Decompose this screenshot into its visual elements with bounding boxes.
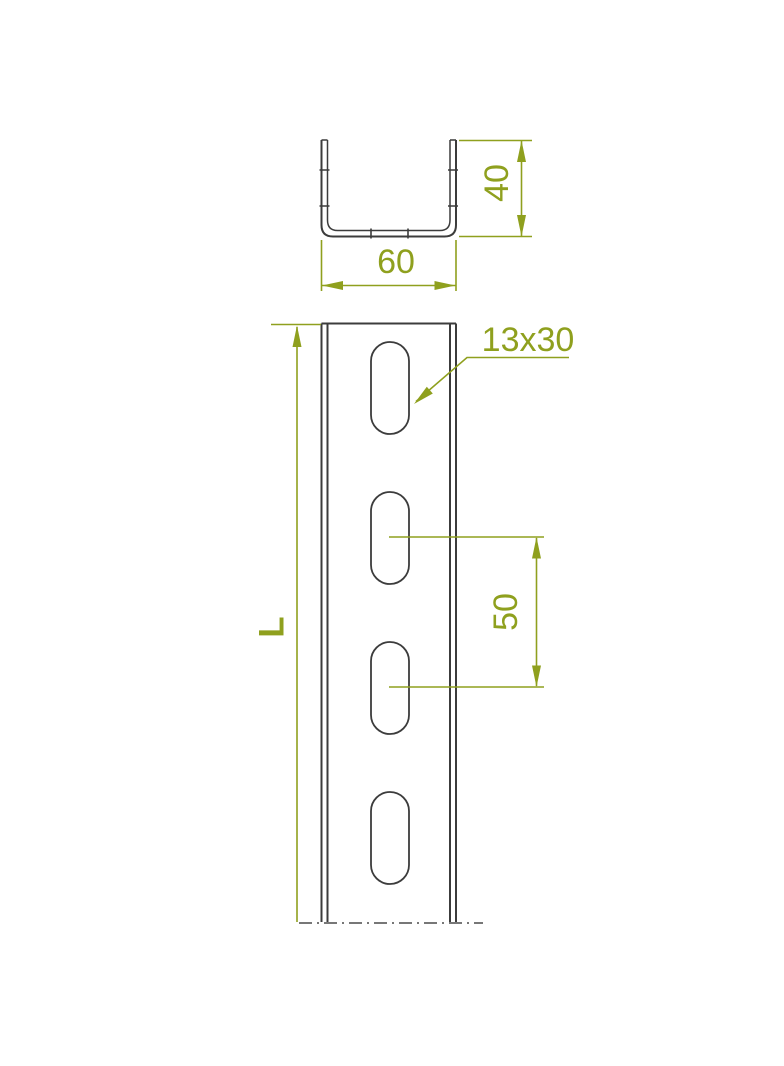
slot-callout-leader (416, 358, 569, 402)
slot (371, 492, 409, 584)
wall-slot-ticks (320, 170, 459, 239)
slot (371, 642, 409, 734)
arrow-up-icon (293, 326, 302, 348)
slot (371, 792, 409, 884)
dimension-linework (271, 141, 569, 923)
arrow-down-icon (517, 215, 526, 237)
arrow-right-icon (435, 281, 456, 290)
arrow-left-icon (322, 281, 343, 290)
slot (371, 342, 409, 434)
cross-section-outer-contour (322, 140, 457, 237)
cross-section-inner-contour (328, 140, 451, 231)
dim-height-label: 40 (480, 164, 514, 202)
technical-drawing: 60 40 13x30 50 L (0, 0, 784, 1066)
front-view (322, 324, 457, 923)
arrow-down-icon (532, 666, 541, 688)
slot-pitch-label: 50 (489, 593, 523, 631)
arrow-up-icon (532, 537, 541, 559)
slot-size-label: 13x30 (482, 323, 575, 357)
arrow-up-icon (517, 141, 526, 163)
drawing-linework (0, 0, 784, 1066)
cross-section-view (320, 140, 459, 239)
front-right-edges (450, 324, 456, 923)
slots (371, 342, 409, 884)
front-left-edges (322, 324, 328, 923)
dim-width-label: 60 (377, 245, 415, 279)
length-label: L (255, 616, 290, 637)
